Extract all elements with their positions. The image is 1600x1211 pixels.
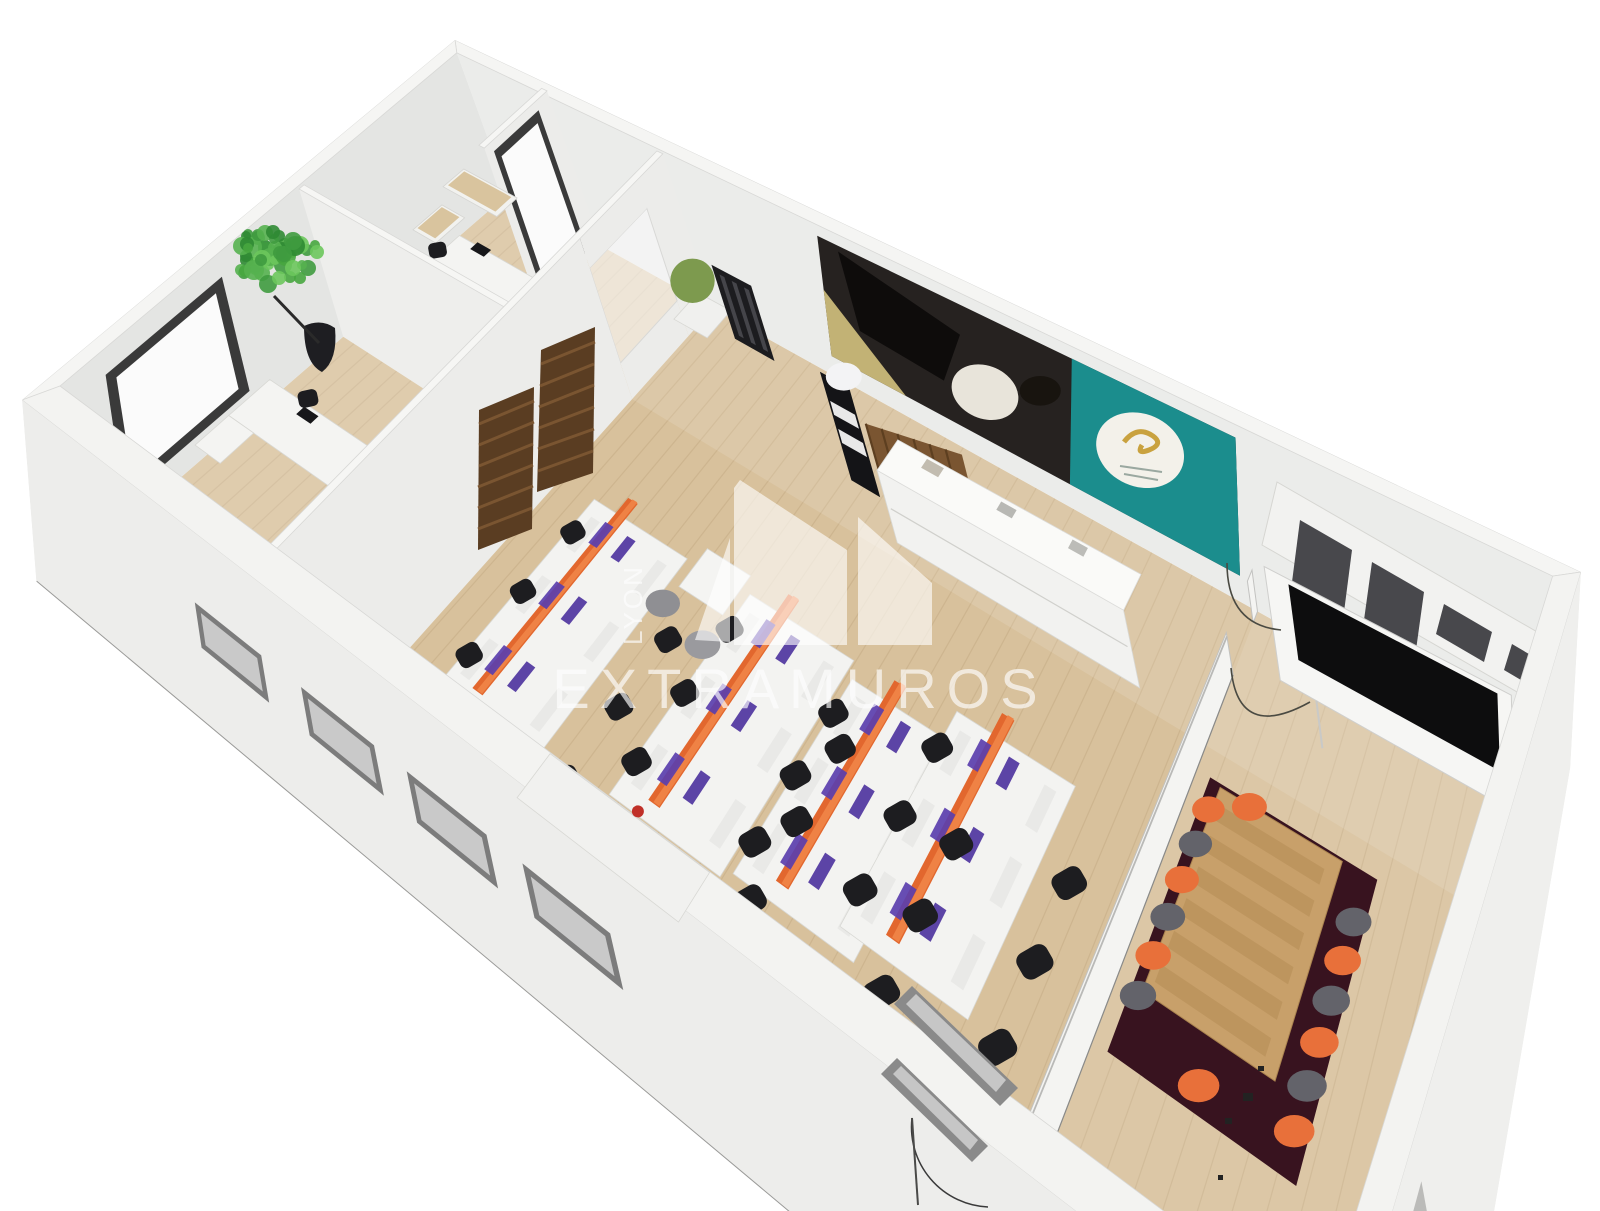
svg-text:EXTRAMUROS: EXTRAMUROS bbox=[552, 657, 1047, 720]
svg-text:LYON: LYON bbox=[618, 564, 648, 645]
